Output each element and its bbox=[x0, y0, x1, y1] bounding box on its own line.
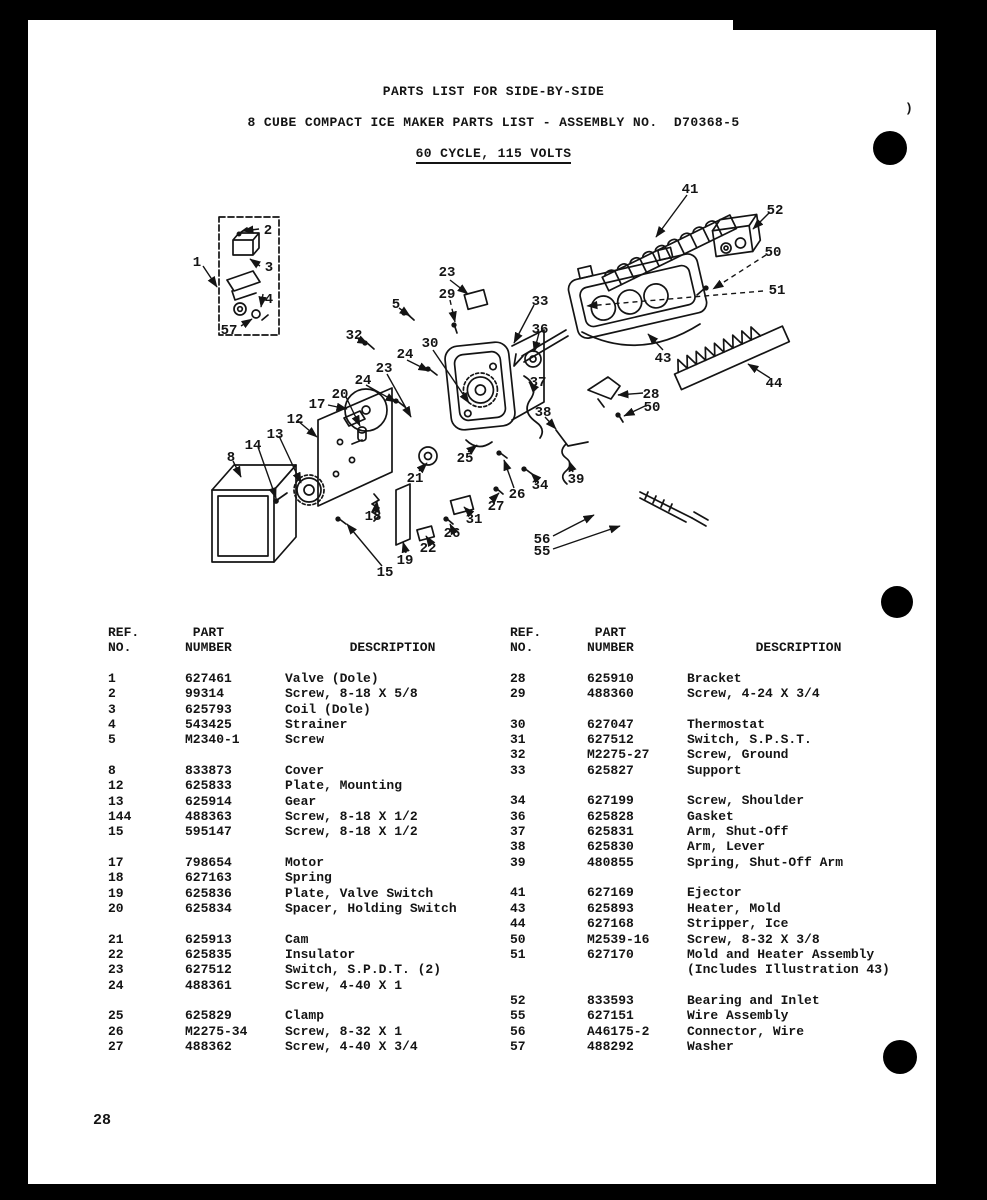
part-number-cell: 488362 bbox=[185, 1039, 285, 1054]
heater-tube bbox=[582, 324, 700, 345]
callout-29: 29 bbox=[439, 287, 456, 303]
ref-no-cell: 8 bbox=[108, 763, 185, 778]
description-cell: Connector, Wire bbox=[687, 1024, 910, 1039]
callout-1: 1 bbox=[193, 255, 201, 271]
description-cell: Screw, 8-32 X 3/8 bbox=[687, 932, 910, 947]
valve-switch-plate bbox=[396, 484, 410, 545]
description-cell: Switch, S.P.S.T. bbox=[687, 732, 910, 747]
part-number-cell: 627170 bbox=[587, 947, 687, 978]
table-row: 52833593Bearing and Inlet bbox=[510, 993, 910, 1008]
callout-24: 24 bbox=[355, 373, 372, 389]
part-number-cell: 625830 bbox=[587, 839, 687, 854]
ref-no-cell: 144 bbox=[108, 809, 185, 824]
part-number-cell: A46175-2 bbox=[587, 1024, 687, 1039]
ref-no-cell: 34 bbox=[510, 793, 587, 808]
table-row: 24488361Screw, 4-40 X 1 bbox=[108, 978, 500, 993]
table-row: 3625793Coil (Dole) bbox=[108, 702, 500, 717]
ref-no-cell: 32 bbox=[510, 747, 587, 762]
ref-no-cell: 36 bbox=[510, 809, 587, 824]
callout-20: 20 bbox=[332, 387, 349, 403]
table-row: 299314Screw, 8-18 X 5/8 bbox=[108, 686, 500, 701]
table-row: 19625836Plate, Valve Switch bbox=[108, 886, 500, 901]
part-number-cell: 625893 bbox=[587, 901, 687, 916]
part-number-cell: 625793 bbox=[185, 702, 285, 717]
ref-no-cell: 57 bbox=[510, 1039, 587, 1054]
parts-table-right-column: REF. NO. PART NUMBER DESCRIPTION 2862591… bbox=[510, 625, 910, 1069]
part-number-cell: 99314 bbox=[185, 686, 285, 701]
part-number-cell: M2275-34 bbox=[185, 1024, 285, 1039]
ref-no-cell: 18 bbox=[108, 870, 185, 885]
table-row: 31627512Switch, S.P.S.T. bbox=[510, 732, 910, 747]
table-row: 29488360Screw, 4-24 X 3/4 bbox=[510, 686, 910, 701]
part-number-cell: 627512 bbox=[587, 732, 687, 747]
part-number-cell: 625833 bbox=[185, 778, 285, 793]
table-group: 25625829Clamp26M2275-34Screw, 8-32 X 127… bbox=[108, 1008, 500, 1054]
callout-26: 26 bbox=[509, 487, 526, 503]
description-cell: Valve (Dole) bbox=[285, 671, 500, 686]
ref-no-cell: 52 bbox=[510, 993, 587, 1008]
table-row: 36625828Gasket bbox=[510, 809, 910, 824]
part-number-cell: 480855 bbox=[587, 855, 687, 870]
callout-12: 12 bbox=[287, 412, 304, 428]
description-cell: Gasket bbox=[687, 809, 910, 824]
part-number-cell: 625831 bbox=[587, 824, 687, 839]
callout-51: 51 bbox=[769, 283, 786, 299]
ref-no-cell: 33 bbox=[510, 763, 587, 778]
table-group: 41627169Ejector43625893Heater, Mold44627… bbox=[510, 885, 910, 977]
part-number-cell: 625829 bbox=[185, 1008, 285, 1023]
part-number-cell: 625835 bbox=[185, 947, 285, 962]
callout-25: 25 bbox=[457, 451, 474, 467]
description-cell: Arm, Lever bbox=[687, 839, 910, 854]
description-cell: Plate, Valve Switch bbox=[285, 886, 500, 901]
ref-no-cell: 38 bbox=[510, 839, 587, 854]
description-cell: Cam bbox=[285, 932, 500, 947]
table-header: REF. NO. PART NUMBER DESCRIPTION bbox=[108, 625, 500, 656]
part-number-cell: 625910 bbox=[587, 671, 687, 686]
table-row: 15595147Screw, 8-18 X 1/2 bbox=[108, 824, 500, 839]
table-row: 23627512Switch, S.P.D.T. (2) bbox=[108, 962, 500, 977]
ref-no-header: REF. NO. bbox=[108, 625, 185, 656]
ref-no-cell: 2 bbox=[108, 686, 185, 701]
table-row: 56A46175-2Connector, Wire bbox=[510, 1024, 910, 1039]
ref-no-cell: 27 bbox=[108, 1039, 185, 1054]
part-number-cell: 627199 bbox=[587, 793, 687, 808]
table-row: 8833873Cover bbox=[108, 763, 500, 778]
description-cell: Screw bbox=[285, 732, 500, 747]
callout-4: 4 bbox=[265, 292, 273, 308]
callout-23: 23 bbox=[439, 265, 456, 281]
table-row: 30627047Thermostat bbox=[510, 717, 910, 732]
callout-30: 30 bbox=[422, 336, 439, 352]
table-row: 26M2275-34Screw, 8-32 X 1 bbox=[108, 1024, 500, 1039]
cover-box bbox=[212, 465, 296, 562]
callout-2: 2 bbox=[264, 223, 272, 239]
parts-table-left-column: REF. NO. PART NUMBER DESCRIPTION 1627461… bbox=[108, 625, 500, 1069]
callout-52: 52 bbox=[767, 203, 784, 219]
description-cell-line2: (Includes Illustration 43) bbox=[687, 962, 910, 977]
callout-34: 34 bbox=[532, 478, 549, 494]
table-row: 44627168Stripper, Ice bbox=[510, 916, 910, 931]
part-number-cell: 625836 bbox=[185, 886, 285, 901]
table-row: 27488362Screw, 4-40 X 3/4 bbox=[108, 1039, 500, 1054]
description-cell: Screw, 4-24 X 3/4 bbox=[687, 686, 910, 701]
table-row: 37625831Arm, Shut-Off bbox=[510, 824, 910, 839]
lever-arm bbox=[556, 430, 588, 446]
description-header: DESCRIPTION bbox=[687, 640, 910, 655]
table-row: 43625893Heater, Mold bbox=[510, 901, 910, 916]
part-number-cell: M2340-1 bbox=[185, 732, 285, 747]
table-row: 20625834Spacer, Holding Switch bbox=[108, 901, 500, 916]
description-cell: Screw, 4-40 X 1 bbox=[285, 978, 500, 993]
part-number-cell: M2275-27 bbox=[587, 747, 687, 762]
ref-no-cell: 24 bbox=[108, 978, 185, 993]
description-cell: Spring bbox=[285, 870, 500, 885]
ref-no-cell: 15 bbox=[108, 824, 185, 839]
part-number-cell: 627163 bbox=[185, 870, 285, 885]
ref-no-cell: 5 bbox=[108, 732, 185, 747]
table-header: REF. NO. PART NUMBER DESCRIPTION bbox=[510, 625, 910, 656]
callout-39: 39 bbox=[568, 472, 585, 488]
table-group: 21625913Cam22625835Insulator23627512Swit… bbox=[108, 932, 500, 994]
spdt-switch bbox=[464, 290, 487, 310]
part-number-cell: 543425 bbox=[185, 717, 285, 732]
gear bbox=[294, 475, 324, 505]
callout-32: 32 bbox=[346, 328, 363, 344]
ref-no-cell: 55 bbox=[510, 1008, 587, 1023]
table-group: 30627047Thermostat31627512Switch, S.P.S.… bbox=[510, 717, 910, 779]
part-number-cell: 627047 bbox=[587, 717, 687, 732]
description-header: DESCRIPTION bbox=[285, 640, 500, 655]
table-row: 5M2340-1Screw bbox=[108, 732, 500, 747]
ref-no-cell: 21 bbox=[108, 932, 185, 947]
description-cell: Bearing and Inlet bbox=[687, 993, 910, 1008]
part-number-cell: 625913 bbox=[185, 932, 285, 947]
clamp bbox=[466, 440, 492, 447]
callout-15: 15 bbox=[377, 565, 394, 581]
ref-no-cell: 39 bbox=[510, 855, 587, 870]
scanned-manual-page: ) PARTS LIST FOR SIDE-BY-SIDE 8 CUBE COM… bbox=[0, 0, 987, 1200]
table-row: 1627461Valve (Dole) bbox=[108, 671, 500, 686]
description-cell: Switch, S.P.D.T. (2) bbox=[285, 962, 500, 977]
ref-no-cell: 50 bbox=[510, 932, 587, 947]
table-group: 34627199Screw, Shoulder36625828Gasket376… bbox=[510, 793, 910, 870]
description-cell: Gear bbox=[285, 794, 500, 809]
description-cell: Thermostat bbox=[687, 717, 910, 732]
ref-no-cell: 3 bbox=[108, 702, 185, 717]
ref-no-cell: 20 bbox=[108, 901, 185, 916]
part-number-cell: 627151 bbox=[587, 1008, 687, 1023]
callout-31: 31 bbox=[466, 512, 483, 528]
callout-33: 33 bbox=[532, 294, 549, 310]
callout-26: 26 bbox=[444, 526, 461, 542]
wire-assembly bbox=[640, 492, 708, 526]
part-number-header: PART NUMBER bbox=[185, 625, 285, 656]
ref-no-cell: 43 bbox=[510, 901, 587, 916]
table-row: 13625914Gear bbox=[108, 794, 500, 809]
callout-57: 57 bbox=[221, 323, 238, 339]
description-cell: Arm, Shut-Off bbox=[687, 824, 910, 839]
ref-no-cell: 1 bbox=[108, 671, 185, 686]
description-cell: Screw, 8-18 X 1/2 bbox=[285, 809, 500, 824]
part-number-cell: 488292 bbox=[587, 1039, 687, 1054]
part-number-cell: 488361 bbox=[185, 978, 285, 993]
description-cell: Wire Assembly bbox=[687, 1008, 910, 1023]
part-number-cell: 595147 bbox=[185, 824, 285, 839]
callout-24: 24 bbox=[397, 347, 414, 363]
table-group: 8833873Cover12625833Plate, Mounting13625… bbox=[108, 763, 500, 840]
callout-44: 44 bbox=[766, 376, 783, 392]
description-cell: Washer bbox=[687, 1039, 910, 1054]
ref-no-cell: 13 bbox=[108, 794, 185, 809]
part-number-cell: 627512 bbox=[185, 962, 285, 977]
ref-no-cell: 37 bbox=[510, 824, 587, 839]
ref-no-header: REF. NO. bbox=[510, 625, 587, 656]
table-row: 144488363Screw, 8-18 X 1/2 bbox=[108, 809, 500, 824]
table-row: 25625829Clamp bbox=[108, 1008, 500, 1023]
description-cell: Coil (Dole) bbox=[285, 702, 500, 717]
part-number-header: PART NUMBER bbox=[587, 625, 687, 656]
table-group: 28625910Bracket29488360Screw, 4-24 X 3/4 bbox=[510, 671, 910, 702]
description-cell: Support bbox=[687, 763, 910, 778]
callout-13: 13 bbox=[267, 427, 284, 443]
table-row: 50M2539-16Screw, 8-32 X 3/8 bbox=[510, 932, 910, 947]
ref-no-cell: 41 bbox=[510, 885, 587, 900]
description-cell: Motor bbox=[285, 855, 500, 870]
part-number-cell: 625828 bbox=[587, 809, 687, 824]
description-cell: Screw, Ground bbox=[687, 747, 910, 762]
callout-8: 8 bbox=[227, 450, 235, 466]
ref-no-cell: 25 bbox=[108, 1008, 185, 1023]
callout-50: 50 bbox=[765, 245, 782, 261]
description-cell: Stripper, Ice bbox=[687, 916, 910, 931]
description-cell: Insulator bbox=[285, 947, 500, 962]
cam bbox=[419, 447, 437, 465]
table-row: 17798654Motor bbox=[108, 855, 500, 870]
callout-43: 43 bbox=[655, 351, 672, 367]
table-group: 52833593Bearing and Inlet55627151Wire As… bbox=[510, 993, 910, 1055]
table-row: 39480855Spring, Shut-Off Arm bbox=[510, 855, 910, 870]
part-number-cell: M2539-16 bbox=[587, 932, 687, 947]
callout-27: 27 bbox=[488, 499, 505, 515]
part-number-cell: 627461 bbox=[185, 671, 285, 686]
callout-19: 19 bbox=[397, 553, 414, 569]
ref-no-cell: 17 bbox=[108, 855, 185, 870]
table-row: 57488292Washer bbox=[510, 1039, 910, 1054]
ref-no-cell: 19 bbox=[108, 886, 185, 901]
part-number-cell: 625827 bbox=[587, 763, 687, 778]
ref-no-cell: 22 bbox=[108, 947, 185, 962]
callout-18: 18 bbox=[365, 509, 382, 525]
leader-lines bbox=[203, 195, 770, 566]
table-row: 18627163Spring bbox=[108, 870, 500, 885]
description-cell: Screw, Shoulder bbox=[687, 793, 910, 808]
description-cell: Heater, Mold bbox=[687, 901, 910, 916]
table-row: 21625913Cam bbox=[108, 932, 500, 947]
part-number-cell: 625834 bbox=[185, 901, 285, 916]
table-row: 22625835Insulator bbox=[108, 947, 500, 962]
gasket bbox=[525, 351, 541, 367]
description-cell: Screw, 8-18 X 5/8 bbox=[285, 686, 500, 701]
table-row: 34627199Screw, Shoulder bbox=[510, 793, 910, 808]
mounting-bracket bbox=[588, 377, 620, 407]
part-number-cell: 627169 bbox=[587, 885, 687, 900]
description-cell: Mold and Heater Assembly(Includes Illust… bbox=[687, 947, 910, 978]
table-row: 28625910Bracket bbox=[510, 671, 910, 686]
callout-14: 14 bbox=[245, 438, 262, 454]
part-number-cell: 798654 bbox=[185, 855, 285, 870]
ref-no-cell: 12 bbox=[108, 778, 185, 793]
callout-36: 36 bbox=[532, 322, 549, 338]
ref-no-cell: 29 bbox=[510, 686, 587, 701]
description-cell: Spacer, Holding Switch bbox=[285, 901, 500, 916]
description-cell: Bracket bbox=[687, 671, 910, 686]
ref-no-cell: 31 bbox=[510, 732, 587, 747]
callout-37: 37 bbox=[530, 375, 547, 391]
callout-21: 21 bbox=[407, 471, 424, 487]
ref-no-cell: 28 bbox=[510, 671, 587, 686]
description-cell: Screw, 4-40 X 3/4 bbox=[285, 1039, 500, 1054]
page-number: 28 bbox=[93, 1112, 111, 1129]
table-row: 55627151Wire Assembly bbox=[510, 1008, 910, 1023]
ref-no-cell: 30 bbox=[510, 717, 587, 732]
callout-17: 17 bbox=[309, 397, 326, 413]
table-row: 33625827Support bbox=[510, 763, 910, 778]
part-number-cell: 488360 bbox=[587, 686, 687, 701]
description-cell: Cover bbox=[285, 763, 500, 778]
support-housing bbox=[444, 341, 516, 431]
description-cell: Screw, 8-32 X 1 bbox=[285, 1024, 500, 1039]
part-number-cell: 833873 bbox=[185, 763, 285, 778]
ref-no-cell: 44 bbox=[510, 916, 587, 931]
callout-22: 22 bbox=[420, 541, 437, 557]
description-cell: Spring, Shut-Off Arm bbox=[687, 855, 910, 870]
callout-3: 3 bbox=[265, 260, 273, 276]
bearing-inlet bbox=[711, 214, 762, 256]
table-group: 17798654Motor18627163Spring19625836Plate… bbox=[108, 855, 500, 917]
part-number-cell: 488363 bbox=[185, 809, 285, 824]
callout-23: 23 bbox=[376, 361, 393, 377]
table-row: 4543425Strainer bbox=[108, 717, 500, 732]
callout-38: 38 bbox=[535, 405, 552, 421]
table-row: 41627169Ejector bbox=[510, 885, 910, 900]
insulator bbox=[417, 526, 434, 541]
description-cell: Ejector bbox=[687, 885, 910, 900]
ref-no-cell: 51 bbox=[510, 947, 587, 978]
callout-5: 5 bbox=[392, 297, 400, 313]
part-number-cell: 833593 bbox=[587, 993, 687, 1008]
callout-41: 41 bbox=[682, 182, 699, 198]
table-row: 12625833Plate, Mounting bbox=[108, 778, 500, 793]
table-row: 38625830Arm, Lever bbox=[510, 839, 910, 854]
callout-55: 55 bbox=[534, 544, 551, 560]
table-group: 1627461Valve (Dole)299314Screw, 8-18 X 5… bbox=[108, 671, 500, 748]
part-number-cell: 625914 bbox=[185, 794, 285, 809]
description-cell: Screw, 8-18 X 1/2 bbox=[285, 824, 500, 839]
part-number-cell: 627168 bbox=[587, 916, 687, 931]
table-row: 32M2275-27Screw, Ground bbox=[510, 747, 910, 762]
ice-mold bbox=[564, 242, 708, 340]
description-cell: Clamp bbox=[285, 1008, 500, 1023]
description-cell: Strainer bbox=[285, 717, 500, 732]
ref-no-cell: 56 bbox=[510, 1024, 587, 1039]
description-cell: Plate, Mounting bbox=[285, 778, 500, 793]
table-row: 51627170Mold and Heater Assembly(Include… bbox=[510, 947, 910, 978]
callout-50: 50 bbox=[644, 400, 661, 416]
ref-no-cell: 4 bbox=[108, 717, 185, 732]
ref-no-cell: 26 bbox=[108, 1024, 185, 1039]
ref-no-cell: 23 bbox=[108, 962, 185, 977]
